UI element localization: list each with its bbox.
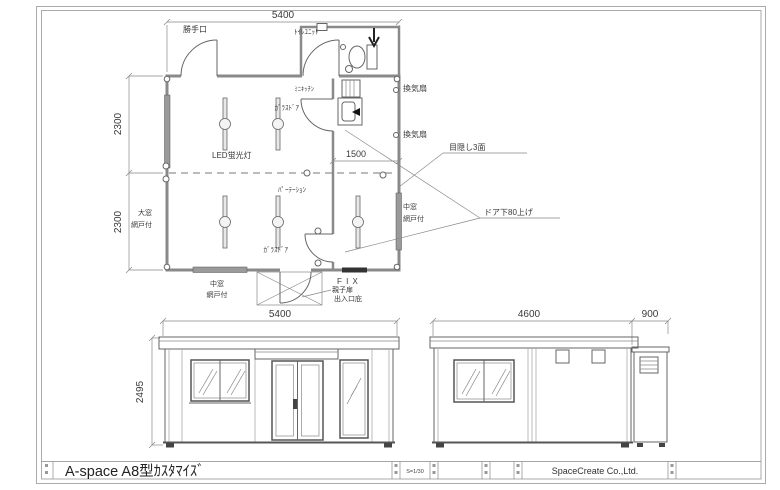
entrance [257,272,322,305]
sheet-title: A-space A8型ｶｽﾀﾏｲｽﾞ [65,463,204,480]
privacy-screen-label: 目隠し3面 [449,142,485,152]
front-dim-height-text: 2495 [135,380,146,403]
front-window [189,360,251,403]
drawing-canvas: 5400 2300 2300 [0,0,780,490]
vent-fan-lower-label: 換気扇 [403,129,427,139]
side-body [434,348,631,442]
side-dim-main-text: 4600 [518,309,541,320]
toilet-tank-icon [367,45,377,69]
front-canopy [255,349,338,359]
floor-plan: 5400 2300 2300 [113,10,560,305]
company-name: SpaceCreate Co.,Ltd. [552,466,639,476]
glass-door-upper-label: ｶﾞﾗｽﾄﾞｱ [275,104,300,112]
side-elevation: 4600 900 [430,309,671,448]
large-window-screen-label: 網戸付 [131,220,152,229]
plan-dim-width: 5400 [164,10,402,72]
drawing-sheet: 5400 2300 2300 [0,0,780,490]
back-door-label: 勝手口 [183,24,207,34]
front-dim-width-text: 5400 [269,309,292,320]
front-elevation: 5400 2495 [135,309,400,448]
kitchen-louver-icon [342,80,360,97]
mini-kitchen-label: ﾐﾆｷｯﾁﾝ [295,85,315,93]
large-window-label: 大窓 [138,208,152,217]
vent-arrow-icon [369,28,379,46]
title-block: A-space A8型ｶｽﾀﾏｲｽﾞ S=1/30 SpaceCreate Co… [42,462,762,481]
fix-window-bar [342,268,367,273]
mid-window-right-screen-label: 網戸付 [403,214,424,223]
mid-window-right-bar [396,193,402,250]
glass-door-lower-swing [305,228,333,266]
fix-label: F I X [337,277,359,286]
toilet-icon [349,46,365,68]
vent-fan-icon-lower [394,133,399,138]
entrance-canopy-label: 出入口庇 [334,294,362,303]
double-door-label: 親子扉 [332,285,353,294]
side-window [454,360,514,402]
glass-door-upper-swing [301,99,333,131]
large-window-bar [165,95,171,168]
mini-kitchen [338,80,362,125]
side-roof [430,337,638,348]
mid-window-bottom-screen-label: 網戸付 [207,290,228,299]
vent-fan-upper-label: 換気扇 [403,83,427,93]
toilet-unit-label: ﾄｲﾚﾕﾆｯﾄ [294,29,319,36]
toilet-vent-window [317,24,327,31]
mid-window-bottom-label: 中窓 [210,279,224,288]
door-raise-label: ドア下80上げ [484,208,533,217]
partition-label: ﾊﾟｰﾃｰｼｮﾝ [278,186,306,194]
led-light-label: LED蛍光灯 [212,150,252,160]
plan-dim-lower-text: 2300 [113,210,124,233]
room-dim-1500: 1500 [330,149,402,164]
front-fix-window [340,360,368,438]
side-vent-window-1 [556,350,569,363]
glass-door-lower-label: ｶﾞﾗｽﾄﾞｱ [264,246,289,254]
mid-window-right-label: 中窓 [403,202,417,211]
plan-dim-upper-text: 2300 [113,112,124,135]
mid-window-bottom-bar [193,267,247,273]
sheet-scale: S=1/30 [406,469,424,475]
plan-dim-heights: 2300 2300 [113,73,163,273]
vent-fan-icon-upper [394,88,399,93]
back-door [181,40,217,76]
door-handle-icon [293,399,297,409]
side-annex [632,347,669,447]
front-door [272,361,323,440]
plan-dim-width-text: 5400 [272,10,295,21]
side-dim-annex-text: 900 [642,309,659,320]
front-roof [159,337,399,349]
room-dim-text: 1500 [346,149,366,159]
side-vent-window-2 [592,350,605,363]
